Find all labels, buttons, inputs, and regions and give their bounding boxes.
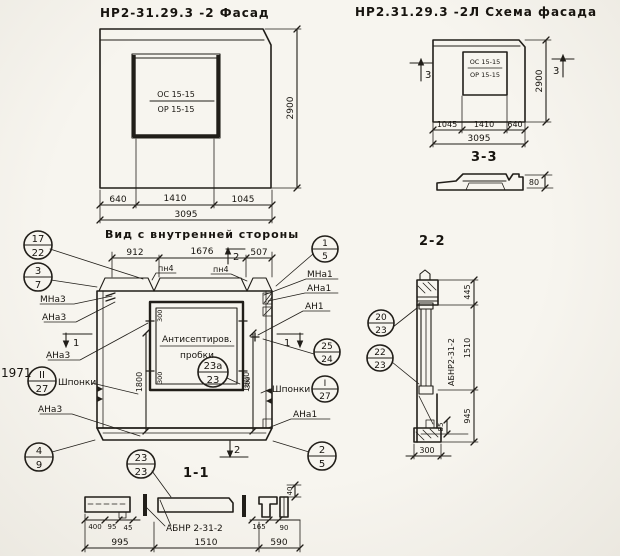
callout-2-5: 2 5 <box>273 441 336 470</box>
scheme-window-mark-bottom: ОР 15-15 <box>470 71 500 79</box>
callout-I-27: I 27 <box>312 376 338 402</box>
dim-1410: 1410 <box>164 194 187 204</box>
facade-title: НР2-31.29.3 -2 Фасад <box>100 6 270 20</box>
callout-20-23: 20 23 <box>368 308 417 336</box>
dim-445: 445 <box>463 284 472 299</box>
inner-top-dimensions: 912 1676 507 <box>109 247 275 277</box>
label-mna3: МНа3 <box>40 295 66 305</box>
section-mark-2-label: 2 <box>233 252 239 263</box>
dim-1676: 1676 <box>191 247 214 257</box>
callout-sheet: 23 <box>207 375 220 386</box>
section-mark-1-left: 1 <box>73 338 79 349</box>
callout-sheet: 23 <box>135 467 148 478</box>
section-2-2: 2-2 АБНР2-31-2 <box>406 234 478 459</box>
section-2-2-profile <box>414 270 441 442</box>
inner-left-labels: МНа3 АНа3 1 АНа3 Шпонки АНа3 <box>38 295 148 436</box>
inner-view-title: Вид с внутренней стороны <box>105 228 299 241</box>
callout-sheet: 24 <box>321 355 333 365</box>
section-1-1-label: 1-1 <box>183 466 210 481</box>
dim-40: 40 <box>286 487 294 496</box>
callout-sheet: 23 <box>374 361 385 371</box>
dim-1510: 1510 <box>463 338 472 358</box>
pn4-label-right: пн4 <box>213 265 229 274</box>
dim-90: 90 <box>280 524 289 532</box>
inner-view-drawing: Вид с внутренней стороны 1971 912 1676 5… <box>1 228 338 457</box>
dim-1045: 1045 <box>437 120 457 129</box>
dim-507: 507 <box>250 248 267 258</box>
label-ana1-2: АНа1 <box>293 410 317 420</box>
section-1-1-profile <box>85 494 288 518</box>
callout-23a-23: 23а 23 <box>198 357 240 387</box>
label-an1: АН1 <box>305 302 324 312</box>
callout-sheet: 9 <box>36 460 42 471</box>
label-mna1: МНа1 <box>307 270 333 280</box>
callout-num: 23 <box>135 453 148 464</box>
dim-1410: 1410 <box>474 120 494 129</box>
section-mark-3-right: 3 <box>553 66 559 77</box>
dim-640: 640 <box>109 195 126 205</box>
callout-sheet: 27 <box>319 392 330 402</box>
section-mark-1-right: 1 <box>284 338 290 349</box>
callout-25-24: 25 24 <box>263 339 340 365</box>
callout-num: 23а <box>204 361 223 372</box>
callout-22-23: 22 23 <box>367 345 419 384</box>
dim-2900: 2900 <box>286 96 296 119</box>
dim-300: 300 <box>419 446 434 455</box>
dim-3095: 3095 <box>175 210 198 220</box>
callout-num: 25 <box>321 342 332 352</box>
dim-3095: 3095 <box>468 134 491 144</box>
callout-num: 22 <box>374 348 385 358</box>
callout-sheet: 23 <box>375 326 386 336</box>
dim-1045: 1045 <box>232 195 255 205</box>
callout-num: 1 <box>322 239 328 249</box>
label-ana1-1: АНа1 <box>307 284 331 294</box>
antiseptic-plugs-line1: Антисептиров. <box>162 335 232 345</box>
facade-window-mark-top: ОС 15-15 <box>157 90 195 99</box>
label-shponki-right: Шпонки <box>272 385 310 395</box>
facade-window-mark-bottom: ОР 15-15 <box>158 105 195 114</box>
section-mark-2-label: 2 <box>234 445 240 456</box>
dim-590: 590 <box>270 538 287 548</box>
callout-num: 3 <box>35 266 41 277</box>
section-mark-3-left: 3 <box>425 70 431 81</box>
label-ana3-1: АНа3 <box>42 313 66 323</box>
dim-400: 400 <box>88 523 101 531</box>
callout-sheet: 27 <box>36 384 49 395</box>
dim-945: 945 <box>463 408 472 423</box>
callout-num: 17 <box>32 234 45 245</box>
label-ana3-3: АНа3 <box>38 405 62 415</box>
callout-II-27: II 27 <box>28 367 56 395</box>
drawing-canvas: НР2-31.29.3 -2 Фасад ОС 15-15 ОР 15-15 6… <box>0 0 620 556</box>
callout-sheet: 5 <box>322 252 328 262</box>
callout-num: II <box>39 370 45 381</box>
scheme-window-mark-top: ОС 15-15 <box>470 58 501 66</box>
section-3-3-label: 3-3 <box>471 150 498 165</box>
label-shponki-left: Шпонки <box>58 378 96 388</box>
section-3-3-profile: 80 <box>437 172 553 191</box>
antiseptic-plugs-line2: пробки <box>180 351 214 361</box>
section-2-2-beam-label: АБНР2-31-2 <box>447 338 456 386</box>
dim-640: 640 <box>507 120 522 129</box>
callout-num: I <box>324 379 327 389</box>
callout-num: 20 <box>375 313 387 323</box>
blueprint-sheet: НР2-31.29.3 -2 Фасад ОС 15-15 ОР 15-15 6… <box>0 0 620 556</box>
callout-sheet: 5 <box>319 459 325 470</box>
dim-1800-right: 1800 <box>242 372 251 392</box>
callout-sheet: 7 <box>35 280 41 291</box>
pn4-label-left: пн4 <box>158 264 174 273</box>
scheme-drawing: НР2.31.29.3 -2Л Схема фасада ОС 15-15 ОР… <box>355 5 597 191</box>
callout-4-9: 4 9 <box>25 440 95 471</box>
section-mark-2-top: 2 <box>226 248 245 264</box>
section-mark-2-bottom: 2 <box>220 441 248 457</box>
dim-2900: 2900 <box>535 69 545 92</box>
label-ana3-2: АНа3 <box>46 351 70 361</box>
section-1-1: 1-1 АБНР 2-31-2 400 95 <box>82 466 303 552</box>
stamp-1971: 1971 <box>1 366 32 380</box>
dim-1800-left: 1800 <box>135 372 144 392</box>
dim-300-window-top: 300 <box>156 310 164 322</box>
scheme-panel: ОС 15-15 ОР 15-15 <box>433 40 525 122</box>
callout-sheet: 22 <box>32 248 45 259</box>
dim-912: 912 <box>126 248 143 258</box>
callout-3-7: 3 7 <box>24 263 97 291</box>
facade-drawing: НР2-31.29.3 -2 Фасад ОС 15-15 ОР 15-15 6… <box>97 6 301 223</box>
facade-window: ОС 15-15 ОР 15-15 <box>132 54 220 138</box>
dim-85: 85 <box>437 423 445 432</box>
section-2-2-label: 2-2 <box>419 234 446 249</box>
beam-mark: АБНР 2-31-2 <box>166 524 223 534</box>
dim-1510: 1510 <box>195 538 218 548</box>
beam-mark: АБНР2-31-2 <box>447 338 456 386</box>
dim-300-window-bottom: 300 <box>156 372 164 384</box>
callout-23-23: 23 23 <box>127 450 155 478</box>
callout-num: 2 <box>319 445 325 456</box>
dim-80: 80 <box>529 178 539 187</box>
callout-num: 4 <box>36 446 42 457</box>
dim-45: 45 <box>124 524 133 532</box>
scheme-dimensions: 1045 1410 640 3095 2900 <box>430 37 551 147</box>
dim-95: 95 <box>108 523 117 531</box>
dim-995: 995 <box>111 538 128 548</box>
scheme-title: НР2.31.29.3 -2Л Схема фасада <box>355 5 597 19</box>
